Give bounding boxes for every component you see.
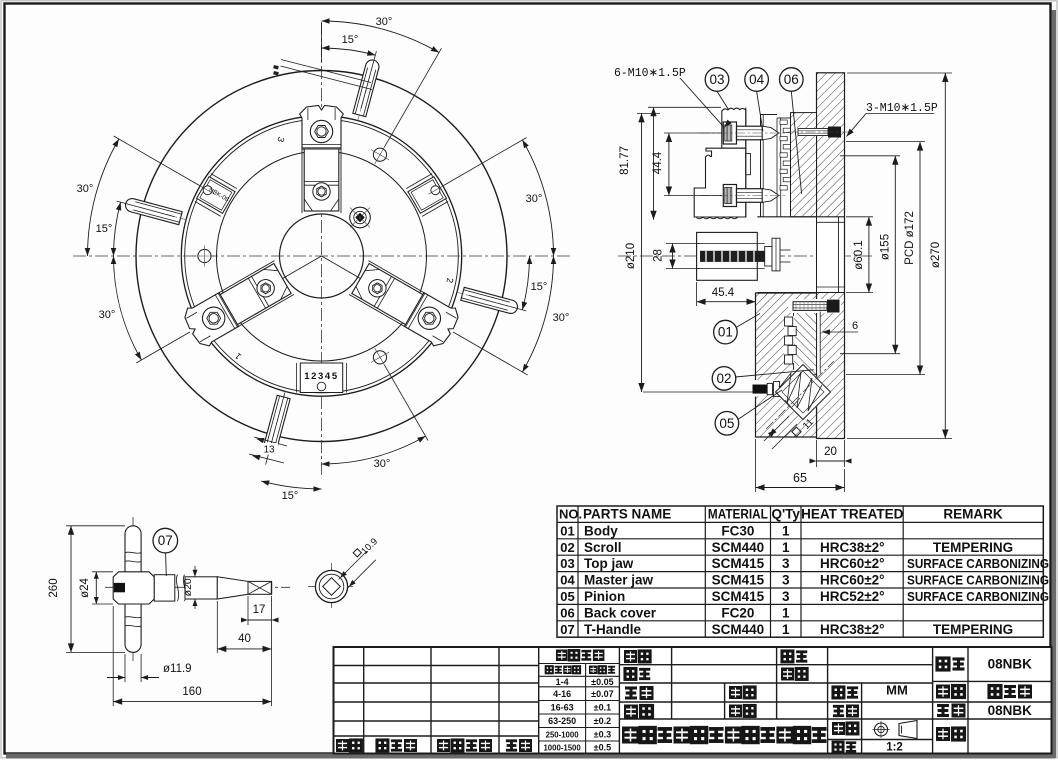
svg-text:HRC38±2°: HRC38±2°	[820, 622, 885, 637]
svg-text:±0.2: ±0.2	[594, 716, 611, 726]
svg-text:PCD ø172: PCD ø172	[904, 211, 916, 265]
svg-text:REMARK: REMARK	[943, 507, 1002, 522]
svg-text:04: 04	[560, 573, 575, 588]
svg-text:Master jaw: Master jaw	[584, 573, 654, 588]
svg-text:03: 03	[560, 556, 574, 571]
svg-text:06: 06	[560, 605, 574, 620]
svg-text:65: 65	[793, 471, 807, 485]
svg-text:1: 1	[782, 605, 790, 620]
svg-text:07: 07	[158, 533, 173, 548]
svg-text:07: 07	[560, 622, 574, 637]
svg-text:HEAT TREATED: HEAT TREATED	[801, 507, 903, 522]
svg-text:6-M10∗1.5P: 6-M10∗1.5P	[614, 67, 686, 80]
svg-text:04: 04	[749, 72, 765, 87]
svg-text:15°: 15°	[282, 490, 299, 502]
svg-text:1:2: 1:2	[886, 742, 903, 754]
svg-text:1: 1	[782, 540, 790, 555]
svg-text:05: 05	[719, 416, 734, 431]
svg-text:HRC52±2°: HRC52±2°	[820, 589, 885, 604]
svg-text:160: 160	[182, 686, 201, 698]
svg-text:SCM415: SCM415	[712, 556, 765, 571]
svg-text:30°: 30°	[77, 183, 94, 195]
svg-text:08NBK: 08NBK	[988, 703, 1033, 718]
svg-text:NO.: NO.	[559, 507, 582, 522]
svg-text:15°: 15°	[531, 281, 548, 293]
svg-text:16-63: 16-63	[551, 703, 574, 713]
svg-text:20: 20	[824, 446, 837, 458]
svg-text:01: 01	[718, 325, 733, 340]
svg-text:40: 40	[238, 633, 251, 645]
svg-text:ø11.9: ø11.9	[163, 663, 192, 675]
svg-text:Q'Ty: Q'Ty	[771, 507, 800, 522]
svg-text:15°: 15°	[96, 223, 113, 235]
svg-text:ø155: ø155	[880, 234, 892, 260]
svg-text:SCM415: SCM415	[712, 589, 765, 604]
svg-text:SURFACE CARBONIZING: SURFACE CARBONIZING	[907, 573, 1049, 588]
svg-text:06: 06	[784, 72, 799, 87]
svg-text:±0.07: ±0.07	[591, 689, 613, 699]
svg-text:3-M10∗1.5P: 3-M10∗1.5P	[866, 102, 938, 115]
svg-text:30°: 30°	[374, 458, 391, 470]
svg-text:ø270: ø270	[930, 242, 942, 268]
svg-text:17: 17	[253, 604, 266, 616]
svg-text:SURFACE CARBONIZING: SURFACE CARBONIZING	[907, 556, 1049, 571]
svg-text:02: 02	[560, 540, 574, 555]
svg-text:260: 260	[48, 578, 60, 597]
svg-text:1: 1	[782, 622, 790, 637]
svg-text:PARTS NAME: PARTS NAME	[583, 507, 671, 522]
svg-text:Top jaw: Top jaw	[584, 556, 634, 571]
svg-text:±0.3: ±0.3	[594, 730, 611, 740]
svg-text:±0.05: ±0.05	[591, 677, 613, 687]
svg-text:81.77: 81.77	[619, 146, 631, 175]
svg-text:Scroll: Scroll	[584, 540, 622, 555]
svg-text:SCM415: SCM415	[712, 573, 765, 588]
svg-text:13: 13	[263, 445, 275, 456]
svg-text:HRC60±2°: HRC60±2°	[820, 556, 885, 571]
svg-text:63-250: 63-250	[548, 716, 576, 726]
svg-text:±0.5: ±0.5	[594, 743, 611, 753]
svg-text:28: 28	[653, 249, 665, 262]
svg-text:MATERIAL: MATERIAL	[708, 507, 768, 522]
svg-text:±0.1: ±0.1	[594, 703, 611, 713]
svg-text:Back cover: Back cover	[584, 605, 657, 620]
svg-text:T-Handle: T-Handle	[584, 622, 641, 637]
svg-text:SURFACE CARBONIZING: SURFACE CARBONIZING	[907, 589, 1049, 604]
svg-text:02: 02	[716, 371, 731, 386]
svg-text:HRC38±2°: HRC38±2°	[820, 540, 885, 555]
svg-text:6: 6	[852, 320, 858, 332]
svg-text:SCM440: SCM440	[712, 622, 765, 637]
svg-text:12345: 12345	[304, 371, 338, 382]
svg-text:05: 05	[560, 589, 574, 604]
svg-text:1-4: 1-4	[556, 677, 569, 687]
svg-text:01: 01	[560, 523, 574, 538]
svg-text:250-1000: 250-1000	[546, 731, 580, 740]
svg-text:1: 1	[782, 523, 790, 538]
svg-text:ø24: ø24	[79, 577, 91, 597]
svg-text:3: 3	[782, 556, 790, 571]
svg-text:Body: Body	[584, 523, 618, 538]
svg-text:30°: 30°	[376, 16, 393, 28]
svg-text:SCM440: SCM440	[712, 540, 765, 555]
svg-text:4-16: 4-16	[553, 689, 571, 699]
svg-text:ø60.1: ø60.1	[853, 240, 865, 269]
svg-text:TEMPERING: TEMPERING	[933, 622, 1013, 637]
svg-text:FC20: FC20	[721, 605, 754, 620]
svg-text:44.4: 44.4	[652, 151, 664, 174]
svg-text:08NBK: 08NBK	[988, 657, 1033, 672]
svg-text:45.4: 45.4	[712, 287, 735, 299]
svg-text:3: 3	[782, 589, 790, 604]
svg-text:TEMPERING: TEMPERING	[933, 540, 1013, 555]
svg-text:FC30: FC30	[721, 523, 754, 538]
svg-text:ø20: ø20	[182, 578, 194, 596]
svg-text:30°: 30°	[553, 312, 570, 324]
svg-text:1000-1500: 1000-1500	[543, 744, 581, 753]
svg-text:30°: 30°	[526, 193, 543, 205]
svg-text:15°: 15°	[342, 34, 359, 46]
svg-text:3: 3	[782, 573, 790, 588]
svg-text:MM: MM	[886, 683, 908, 698]
svg-text:30°: 30°	[99, 309, 116, 321]
svg-text:ø210: ø210	[625, 243, 637, 269]
svg-text:HRC60±2°: HRC60±2°	[820, 573, 885, 588]
svg-text:Pinion: Pinion	[584, 589, 625, 604]
svg-text:03: 03	[709, 72, 724, 87]
